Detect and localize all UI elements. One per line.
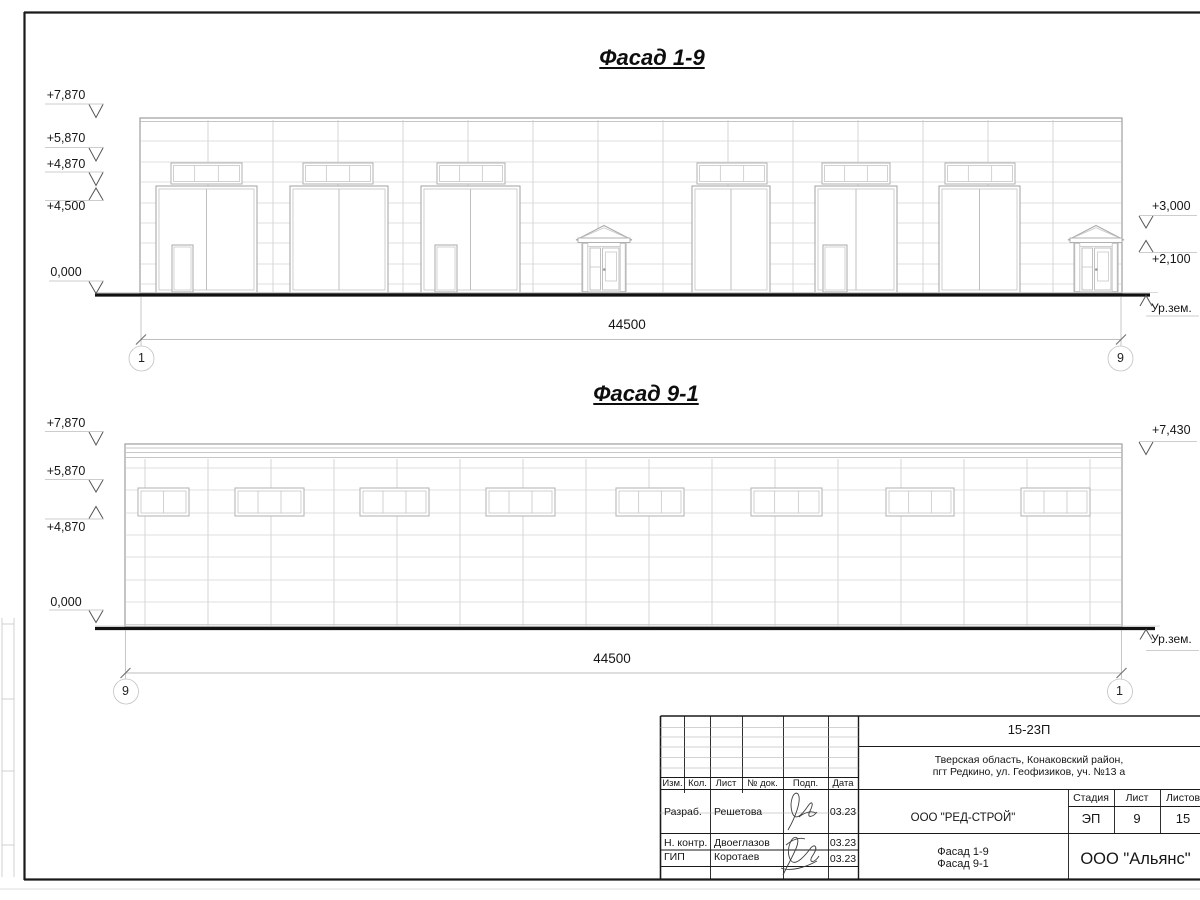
dimension-f91 bbox=[114, 630, 1133, 704]
drawing-sheet: Фасад 1-9 Фасад 9-1 +7,870 +5,870 +4,870… bbox=[0, 0, 1200, 900]
stamp-col-podp: Подп. bbox=[783, 779, 828, 790]
stamp-object-line1: Фасад 1-9 bbox=[858, 846, 1068, 859]
stamp-company: ООО "Альянс" bbox=[1068, 850, 1200, 869]
stamp-date: 03.23 bbox=[828, 806, 858, 818]
dimension-label: 44500 bbox=[587, 317, 667, 333]
stamp-doc-number: 15-23П bbox=[858, 723, 1200, 738]
stamp-col-data: Дата bbox=[828, 779, 858, 790]
stamp-col-izm: Изм. bbox=[660, 779, 685, 790]
stamp-object-line2: Фасад 9-1 bbox=[858, 858, 1068, 871]
axis-bubble-label: 1 bbox=[129, 351, 154, 365]
stamp-name: Двоеглазов bbox=[714, 837, 770, 849]
stamp-sheets-value: 15 bbox=[1160, 812, 1200, 827]
entrance-door-porch bbox=[576, 226, 632, 293]
axis-bubble-label: 9 bbox=[1108, 351, 1133, 365]
elevation-mark-label: +4,500 bbox=[42, 199, 90, 213]
elevation-mark-label: +5,870 bbox=[42, 131, 90, 145]
stamp-col-list: Лист bbox=[710, 779, 742, 790]
stamp-address-line2: пгт Редкино, ул. Геофизиков, уч. №13 а bbox=[858, 766, 1200, 778]
stamp-role: ГИП bbox=[664, 851, 685, 863]
elevation-mark-label: +7,430 bbox=[1152, 423, 1198, 437]
facade-9-1-title: Фасад 9-1 bbox=[496, 381, 796, 406]
elevation-mark-label: +5,870 bbox=[42, 464, 90, 478]
axis-bubble-label: 1 bbox=[1107, 684, 1132, 698]
signatures bbox=[781, 793, 819, 875]
ground-level-label: Ур.зем. bbox=[1151, 633, 1192, 647]
stamp-col-doc: № док. bbox=[742, 779, 783, 790]
elevation-mark-label: +4,870 bbox=[42, 157, 90, 171]
elevation-mark-label: +4,870 bbox=[42, 520, 90, 534]
axis-bubble-label: 9 bbox=[113, 684, 138, 698]
stamp-name: Коротаев bbox=[714, 851, 759, 863]
stamp-sheets-header: Листов bbox=[1160, 792, 1200, 804]
stamp-client: ООО "РЕД-СТРОЙ" bbox=[858, 812, 1068, 825]
elevation-mark-label: 0,000 bbox=[42, 265, 90, 279]
ground-level-label: Ур.зем. bbox=[1151, 302, 1192, 316]
stamp-role: Разраб. bbox=[664, 806, 702, 818]
elevation-mark-label: +3,000 bbox=[1152, 199, 1198, 213]
stamp-date: 03.23 bbox=[828, 853, 858, 865]
stamp-sheet-value: 9 bbox=[1114, 812, 1160, 827]
stamp-role: Н. контр. bbox=[664, 837, 707, 849]
elevation-mark-label: +7,870 bbox=[42, 416, 90, 430]
elevation-mark-label: 0,000 bbox=[42, 595, 90, 609]
stamp-stage-value: ЭП bbox=[1068, 812, 1114, 827]
dimension-f19 bbox=[129, 297, 1133, 371]
dimension-label: 44500 bbox=[572, 651, 652, 667]
stamp-stage-header: Стадия bbox=[1068, 792, 1114, 804]
facade-1-9-title: Фасад 1-9 bbox=[502, 45, 802, 70]
left-margin-table bbox=[2, 618, 14, 877]
elevation-mark-label: +2,100 bbox=[1152, 252, 1198, 266]
stamp-sheet-header: Лист bbox=[1114, 792, 1160, 804]
stamp-name: Решетова bbox=[714, 806, 762, 818]
elevation-mark-label: +7,870 bbox=[42, 88, 90, 102]
stamp-address-line1: Тверская область, Конаковский район, bbox=[858, 754, 1200, 766]
stamp-date: 03.23 bbox=[828, 837, 858, 849]
stamp-col-kol: Кол. bbox=[685, 779, 710, 790]
